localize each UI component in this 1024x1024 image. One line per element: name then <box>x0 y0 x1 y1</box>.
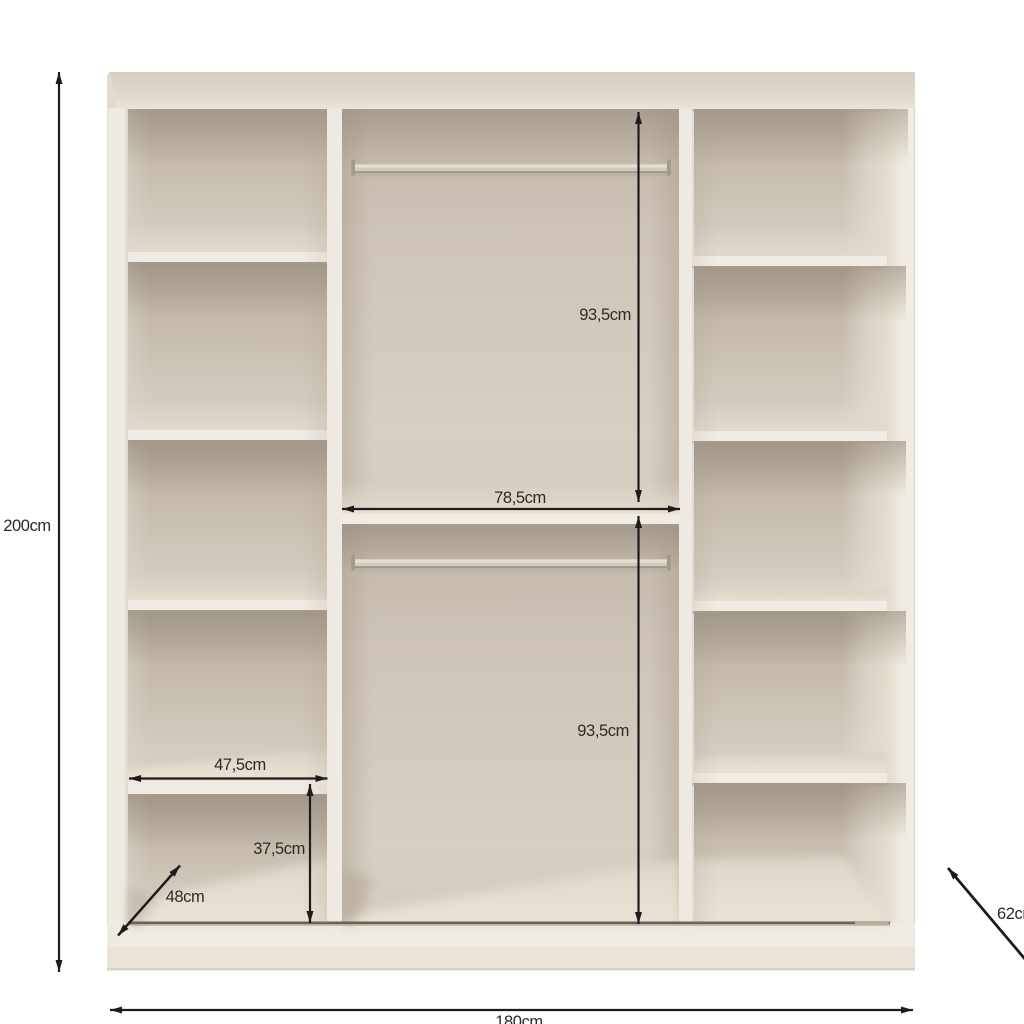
svg-text:180cm: 180cm <box>495 1013 543 1024</box>
svg-text:200cm: 200cm <box>3 517 51 535</box>
svg-text:93,5cm: 93,5cm <box>579 306 631 324</box>
svg-text:47,5cm: 47,5cm <box>214 756 266 774</box>
svg-text:78,5cm: 78,5cm <box>494 489 546 507</box>
svg-text:48cm: 48cm <box>166 888 205 906</box>
svg-text:37,5cm: 37,5cm <box>253 840 305 858</box>
svg-text:93,5cm: 93,5cm <box>577 722 629 740</box>
svg-text:62cm: 62cm <box>997 905 1024 923</box>
